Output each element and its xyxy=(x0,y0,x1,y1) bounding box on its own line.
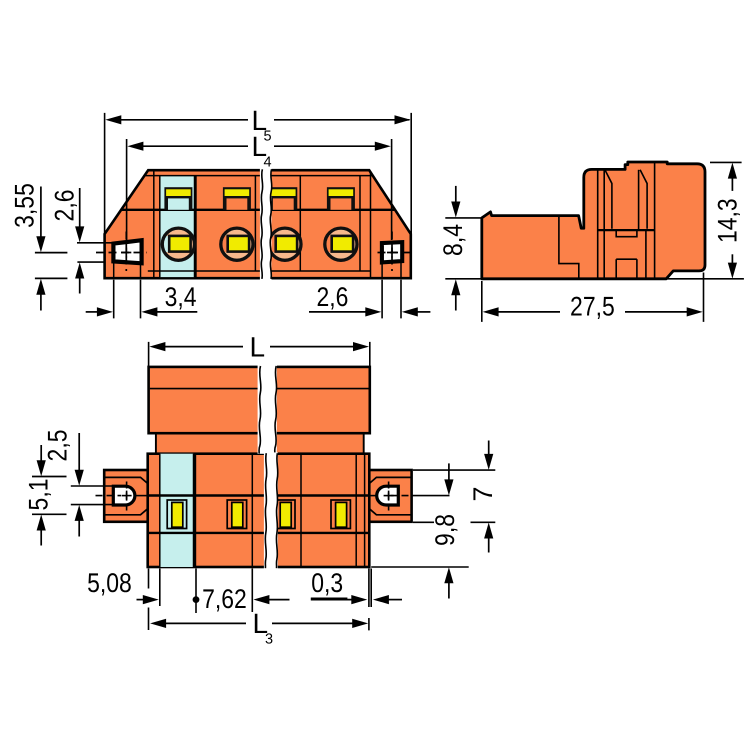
svg-text:0,3: 0,3 xyxy=(311,568,343,598)
svg-text:5,1: 5,1 xyxy=(24,479,54,511)
svg-text:7: 7 xyxy=(468,486,498,501)
svg-text:2,6: 2,6 xyxy=(316,282,348,312)
svg-text:9,8: 9,8 xyxy=(430,514,460,546)
svg-text:27,5: 27,5 xyxy=(570,292,615,322)
svg-text:8,4: 8,4 xyxy=(438,224,468,256)
svg-text:5,08: 5,08 xyxy=(87,568,132,598)
svg-text:14,3: 14,3 xyxy=(713,198,743,243)
svg-text:3,4: 3,4 xyxy=(165,282,197,312)
svg-text:3,55: 3,55 xyxy=(10,183,40,228)
svg-text:L: L xyxy=(250,332,266,363)
svg-text:2,5: 2,5 xyxy=(43,430,73,462)
svg-text:7,62: 7,62 xyxy=(202,584,247,614)
svg-text:4: 4 xyxy=(264,155,272,171)
svg-text:2,6: 2,6 xyxy=(50,190,80,222)
svg-text:3: 3 xyxy=(265,631,273,647)
